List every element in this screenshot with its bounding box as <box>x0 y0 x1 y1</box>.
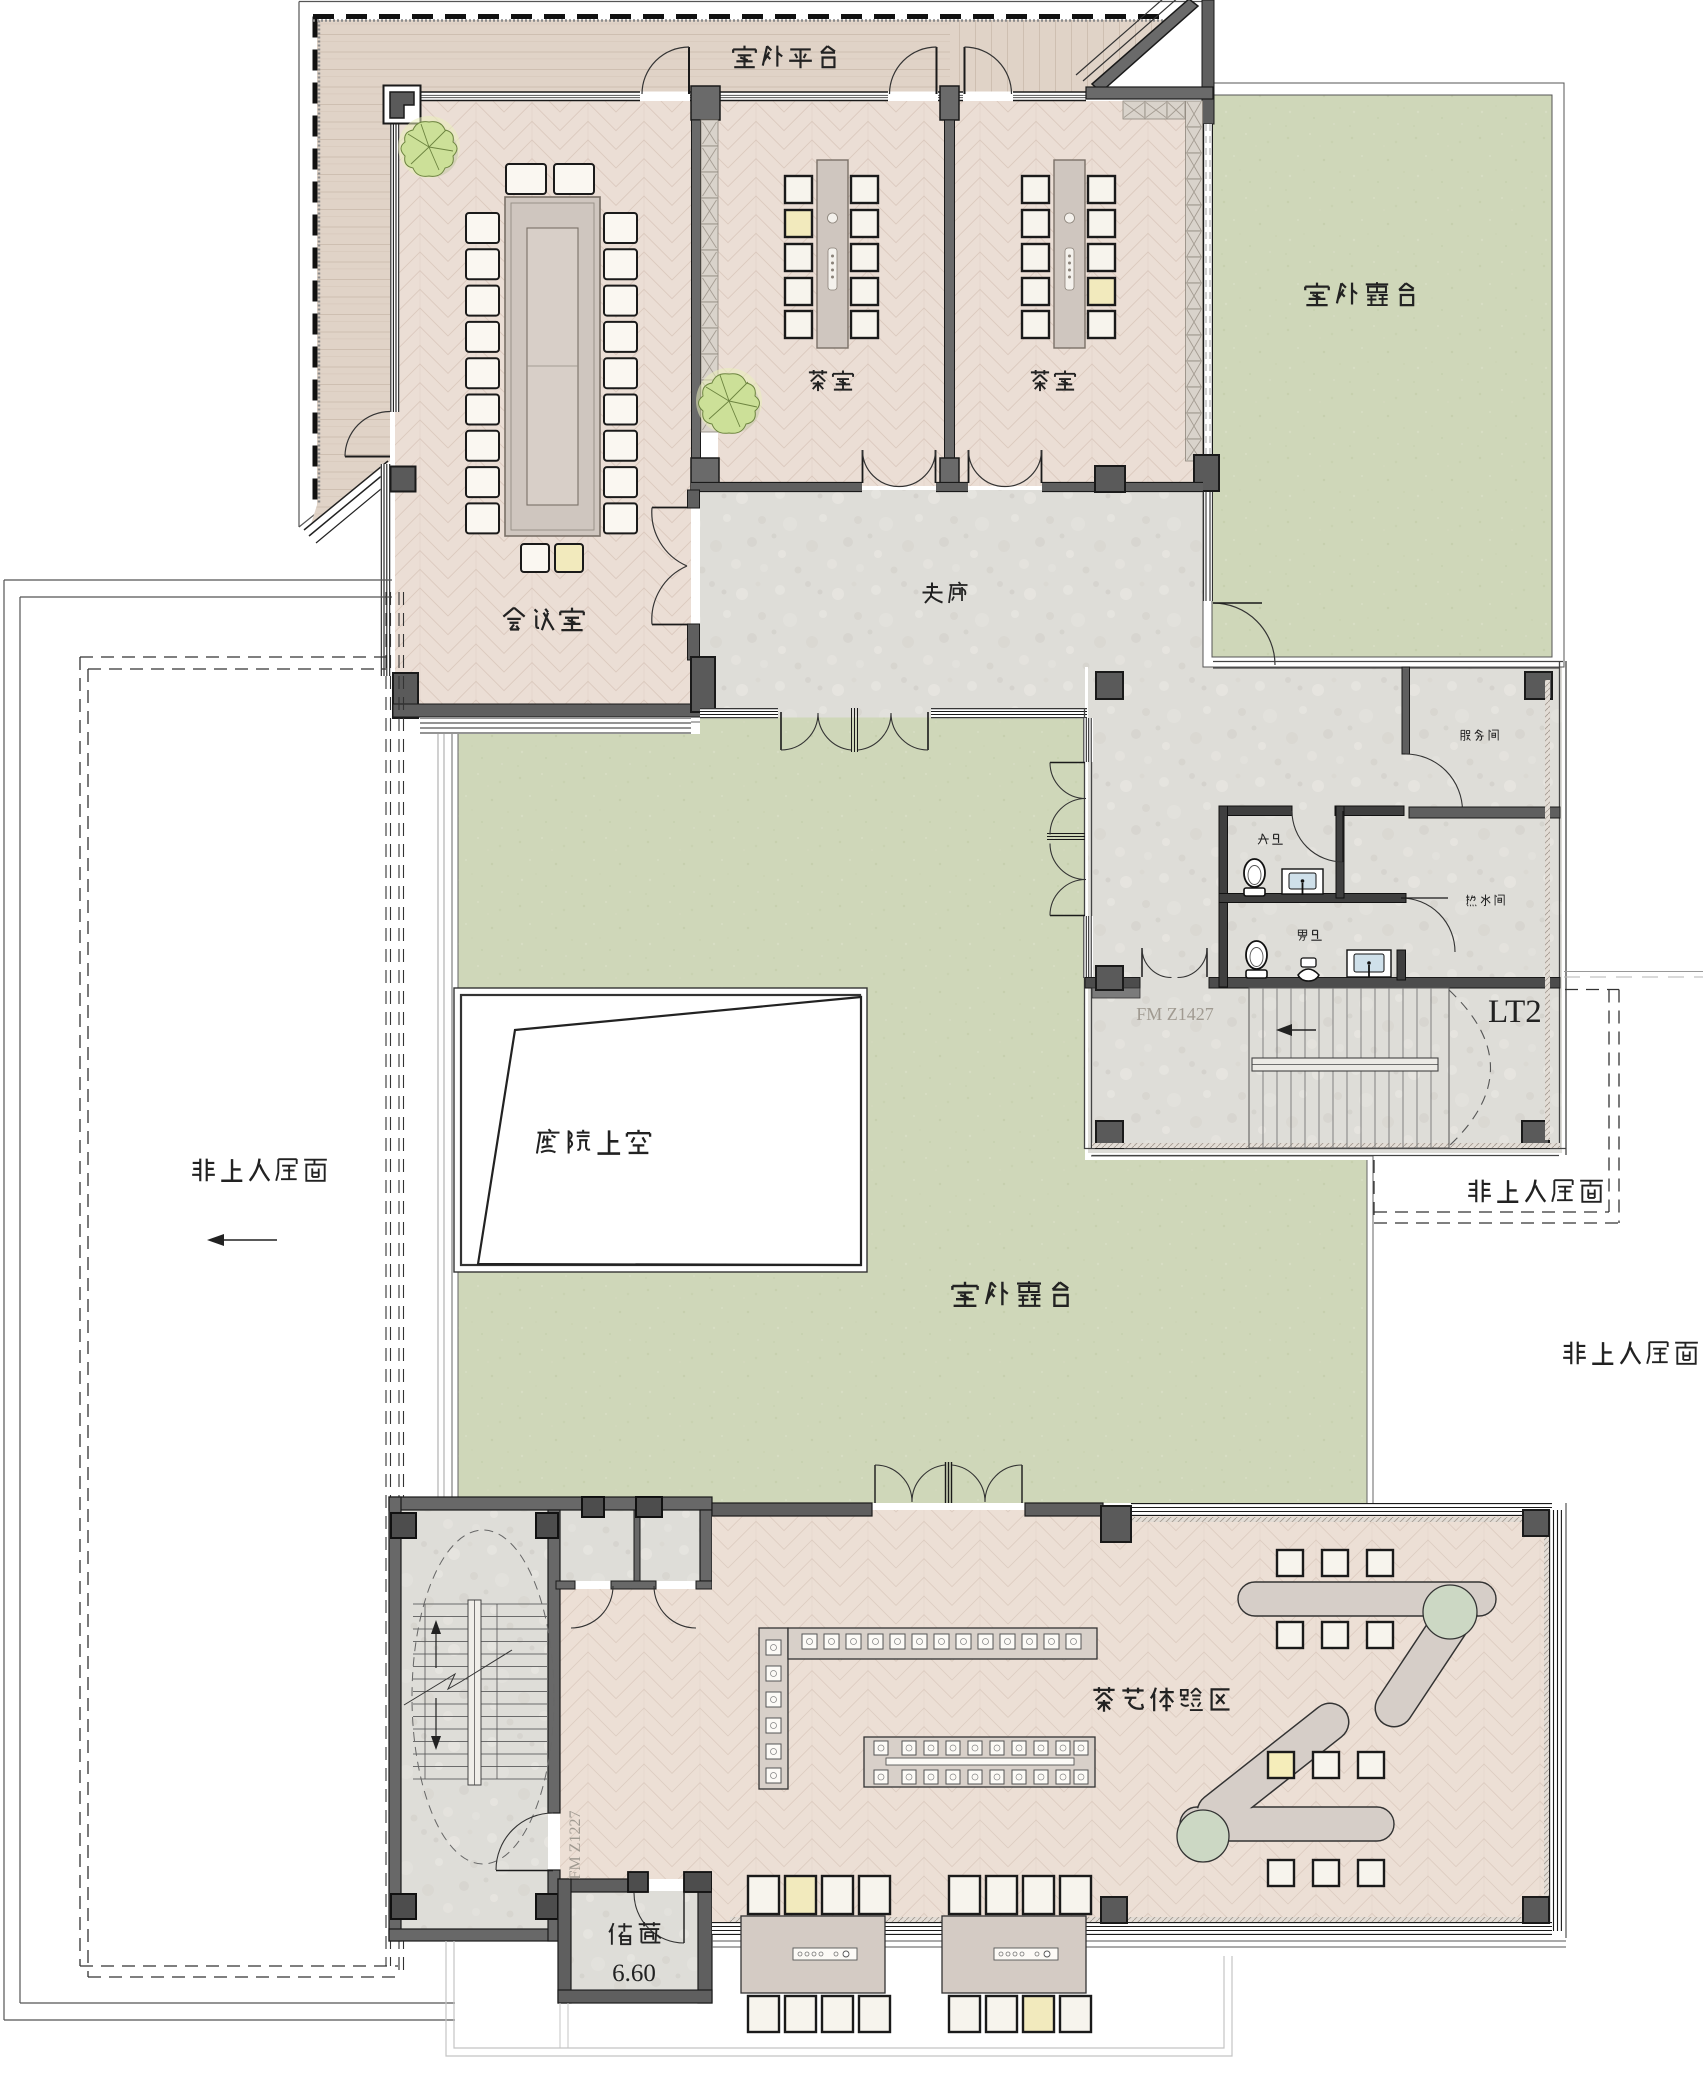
svg-text:6.60: 6.60 <box>612 1960 656 1987</box>
svg-text:FM Z1427: FM Z1427 <box>1136 1004 1214 1024</box>
svg-text:FM Z1227: FM Z1227 <box>567 1811 584 1880</box>
svg-text:LT2: LT2 <box>1488 994 1542 1030</box>
